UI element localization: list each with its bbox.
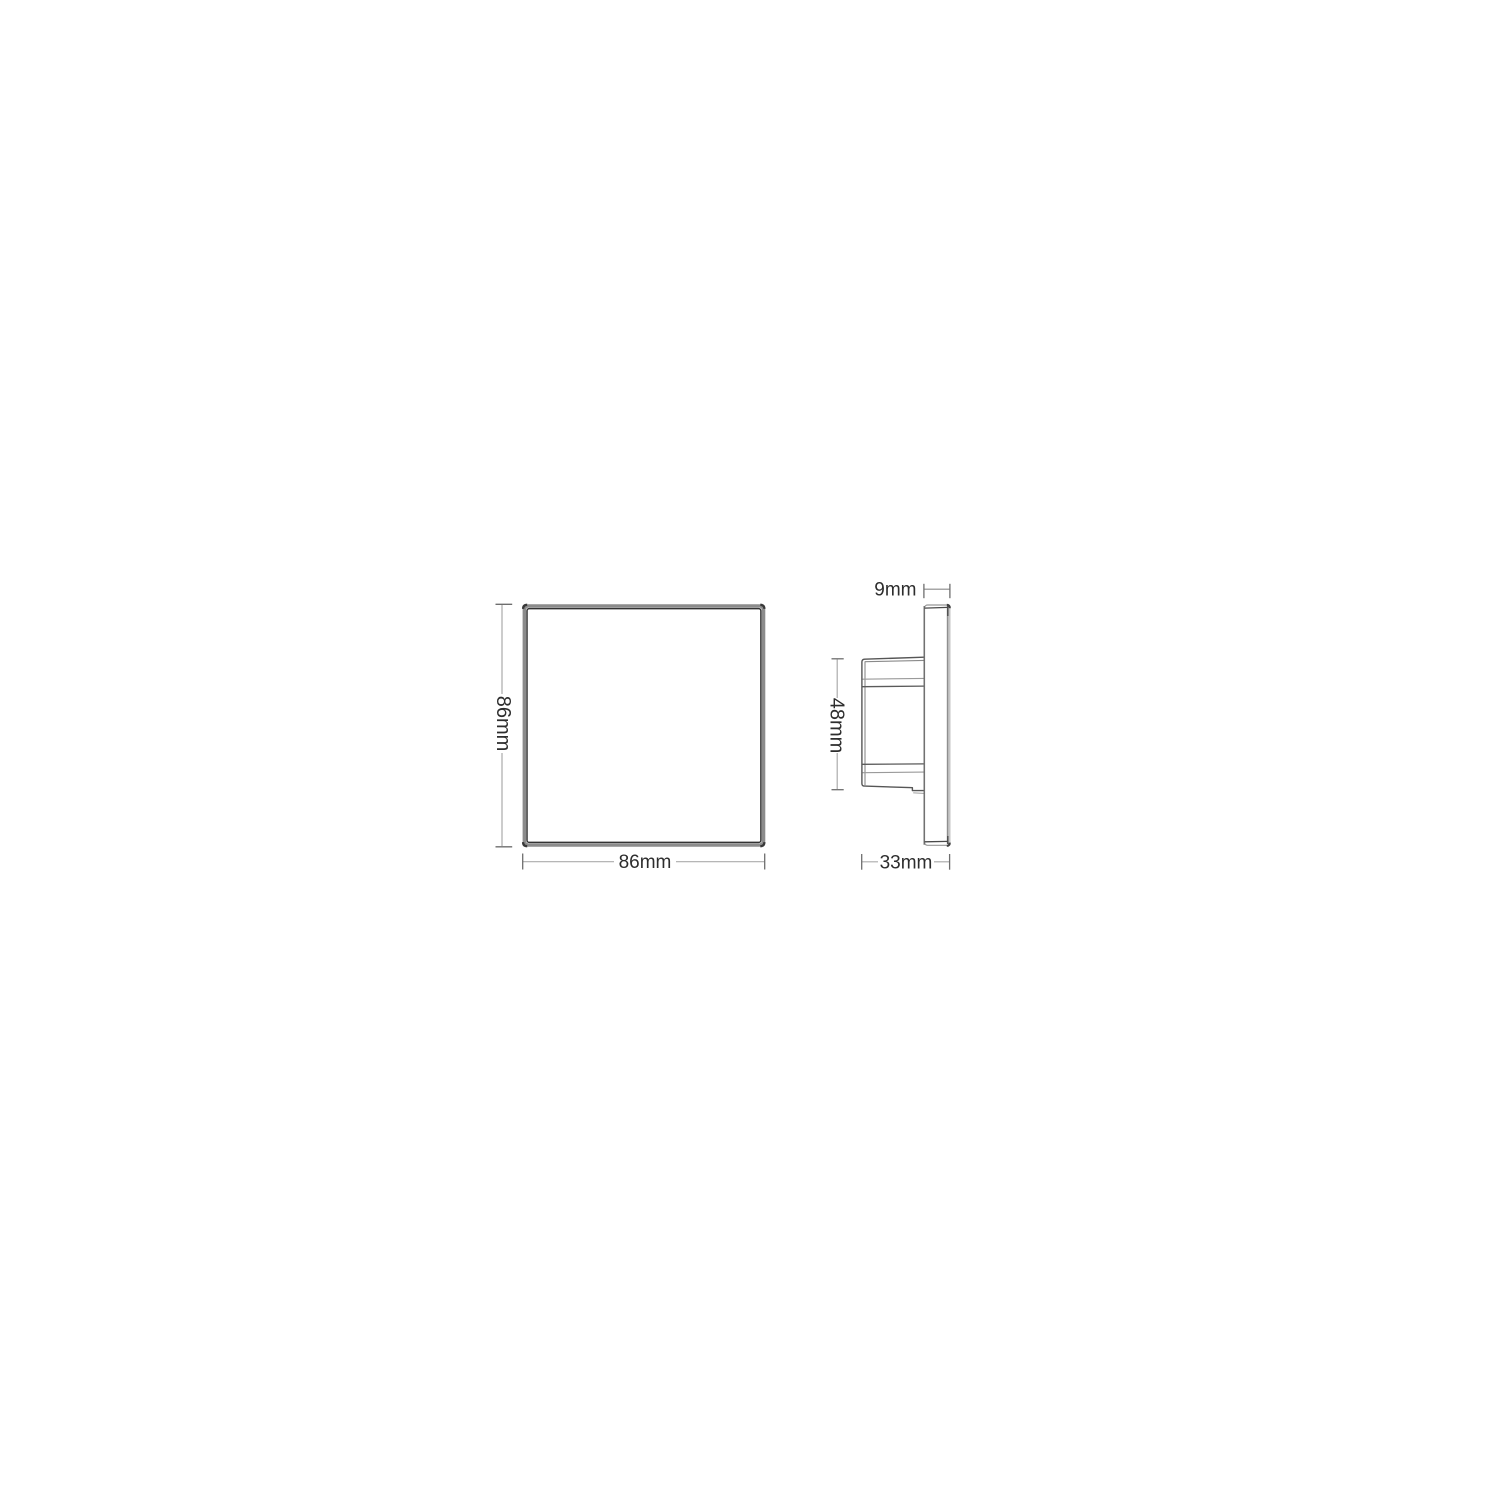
svg-text:86mm: 86mm bbox=[619, 852, 672, 873]
svg-text:9mm: 9mm bbox=[874, 580, 916, 601]
svg-text:48mm: 48mm bbox=[825, 698, 847, 754]
svg-text:33mm: 33mm bbox=[880, 852, 933, 873]
svg-text:86mm: 86mm bbox=[492, 696, 514, 752]
